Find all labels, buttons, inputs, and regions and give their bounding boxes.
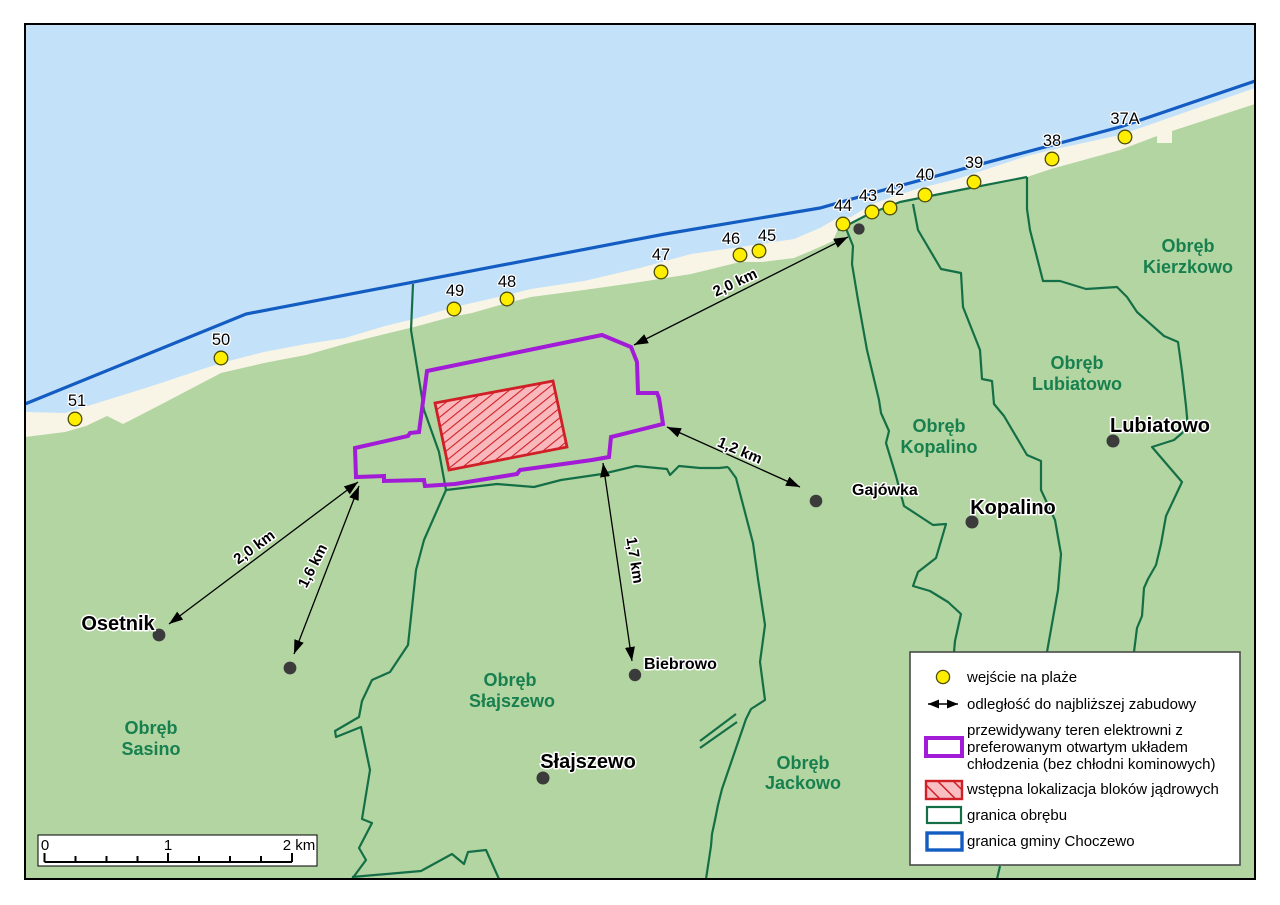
svg-text:51: 51 (68, 392, 86, 410)
svg-text:Jackowo: Jackowo (765, 773, 841, 793)
svg-text:Gajówka: Gajówka (852, 482, 918, 499)
svg-text:37A: 37A (1110, 110, 1139, 128)
svg-text:Obręb: Obręb (1161, 236, 1214, 256)
svg-text:wejście na plaże: wejście na plaże (966, 669, 1077, 686)
svg-text:Obręb: Obręb (483, 670, 536, 690)
svg-text:wstępna lokalizacja bloków jąd: wstępna lokalizacja bloków jądrowych (966, 781, 1219, 798)
svg-text:47: 47 (652, 246, 670, 264)
svg-text:42: 42 (886, 181, 904, 199)
svg-text:43: 43 (859, 187, 877, 205)
svg-text:Obręb: Obręb (912, 416, 965, 436)
svg-text:Osetnik: Osetnik (81, 613, 155, 635)
svg-text:46: 46 (722, 230, 740, 248)
svg-text:granica obrębu: granica obrębu (967, 807, 1067, 824)
svg-text:2 km: 2 km (283, 837, 316, 854)
svg-text:Słajszewo: Słajszewo (540, 751, 636, 773)
svg-text:granica gminy Choczewo: granica gminy Choczewo (967, 833, 1135, 850)
svg-text:Biebrowo: Biebrowo (644, 656, 717, 673)
svg-text:50: 50 (212, 331, 230, 349)
svg-text:1: 1 (164, 837, 172, 854)
svg-text:Sasino: Sasino (121, 739, 180, 759)
svg-text:Kopalino: Kopalino (970, 497, 1056, 519)
svg-text:38: 38 (1043, 132, 1061, 150)
svg-text:40: 40 (916, 166, 934, 184)
svg-text:44: 44 (834, 197, 852, 215)
svg-text:odległość do najbliższej zabud: odległość do najbliższej zabudowy (967, 696, 1197, 713)
svg-text:49: 49 (446, 282, 464, 300)
svg-text:Słajszewo: Słajszewo (469, 691, 555, 711)
svg-text:Kopalino: Kopalino (901, 437, 978, 457)
svg-text:45: 45 (758, 227, 776, 245)
svg-text:Kierzkowo: Kierzkowo (1143, 257, 1233, 277)
svg-text:48: 48 (498, 273, 516, 291)
svg-text:Lubiatowo: Lubiatowo (1032, 374, 1122, 394)
svg-text:Lubiatowo: Lubiatowo (1110, 415, 1210, 437)
svg-text:przewidywany teren elektrowni: przewidywany teren elektrowni z (967, 722, 1183, 739)
svg-text:0: 0 (41, 837, 49, 854)
svg-text:Obręb: Obręb (1050, 353, 1103, 373)
svg-text:preferowanym otwartym układem: preferowanym otwartym układem (967, 739, 1188, 756)
svg-text:chłodzenia (bez chłodni komino: chłodzenia (bez chłodni kominowych) (967, 756, 1215, 773)
svg-text:Obręb: Obręb (124, 718, 177, 738)
svg-text:Obręb: Obręb (776, 753, 829, 773)
svg-text:39: 39 (965, 154, 983, 172)
